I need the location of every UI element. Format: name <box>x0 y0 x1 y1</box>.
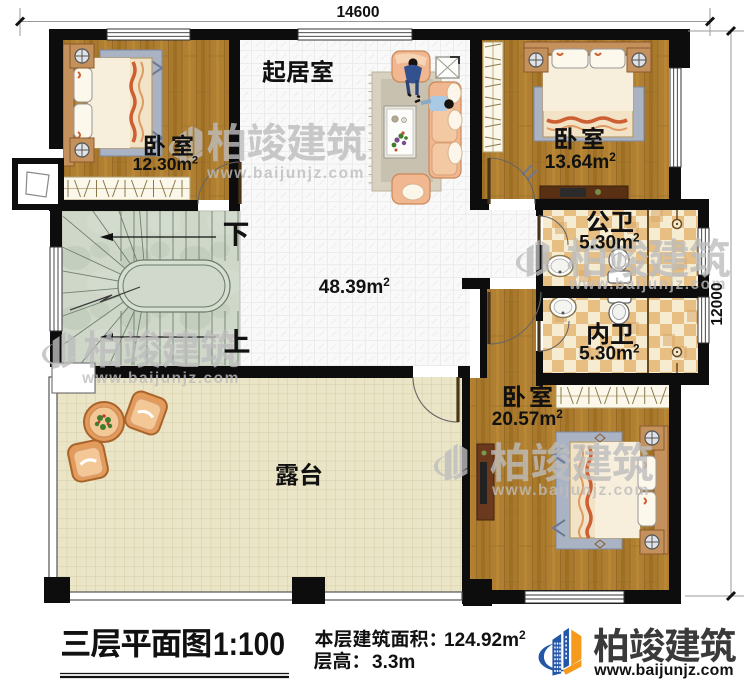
svg-text:1:100: 1:100 <box>213 626 285 662</box>
svg-text:www.baijunjz.com: www.baijunjz.com <box>81 370 240 387</box>
svg-text:48.39m2: 48.39m2 <box>319 276 390 298</box>
svg-text:13.64m2: 13.64m2 <box>545 151 616 173</box>
svg-text:12000: 12000 <box>709 282 726 325</box>
svg-text:www.baijunjz.com: www.baijunjz.com <box>568 276 727 293</box>
svg-text:5.30m2: 5.30m2 <box>579 232 640 254</box>
svg-text:www.baijunjz.com: www.baijunjz.com <box>206 165 365 182</box>
svg-text:12.30m2: 12.30m2 <box>133 154 198 174</box>
svg-text:5.30m2: 5.30m2 <box>579 343 640 365</box>
svg-text:www.baijunjz.com: www.baijunjz.com <box>593 662 734 679</box>
svg-text:20.57m2: 20.57m2 <box>492 408 563 430</box>
svg-text:www.baijunjz.com: www.baijunjz.com <box>491 482 650 499</box>
svg-text:3.3m: 3.3m <box>372 652 415 673</box>
svg-text:14600: 14600 <box>336 4 379 21</box>
svg-text:124.92m2: 124.92m2 <box>444 628 526 651</box>
